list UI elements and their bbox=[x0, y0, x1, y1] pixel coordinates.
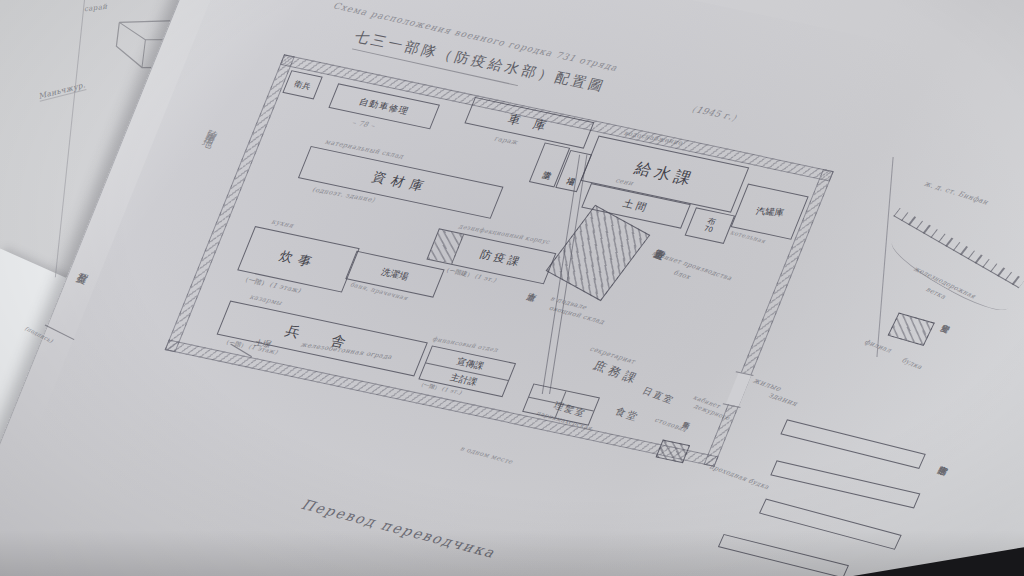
auto-repair-label: 自動車修理 bbox=[357, 95, 411, 118]
garage-label: 車 庫 bbox=[505, 110, 553, 135]
water-dept-label: 給水課 bbox=[631, 158, 698, 190]
epidemic-label: 防疫課 bbox=[478, 247, 525, 270]
laundry-label: 洗濯場 bbox=[379, 265, 410, 283]
materials-label: 資材庫 bbox=[369, 168, 432, 197]
hall-label: 講堂 bbox=[544, 164, 555, 166]
fence-label-jp: 土塀 bbox=[253, 337, 272, 350]
kitchen-label: 炊事 bbox=[276, 247, 320, 272]
boiler-label: 汽罐庫 bbox=[754, 204, 785, 219]
cloth-store-number: 70 bbox=[702, 225, 714, 234]
main-sheet: Схема расположения военного городка 731 … bbox=[0, 0, 1024, 576]
doma-label: 土間 bbox=[621, 197, 652, 216]
photograph-of-document: сарай Маньчжур. Схема расположения военн… bbox=[0, 0, 1024, 576]
guard-box-nw-label: 衛兵 bbox=[293, 78, 313, 92]
